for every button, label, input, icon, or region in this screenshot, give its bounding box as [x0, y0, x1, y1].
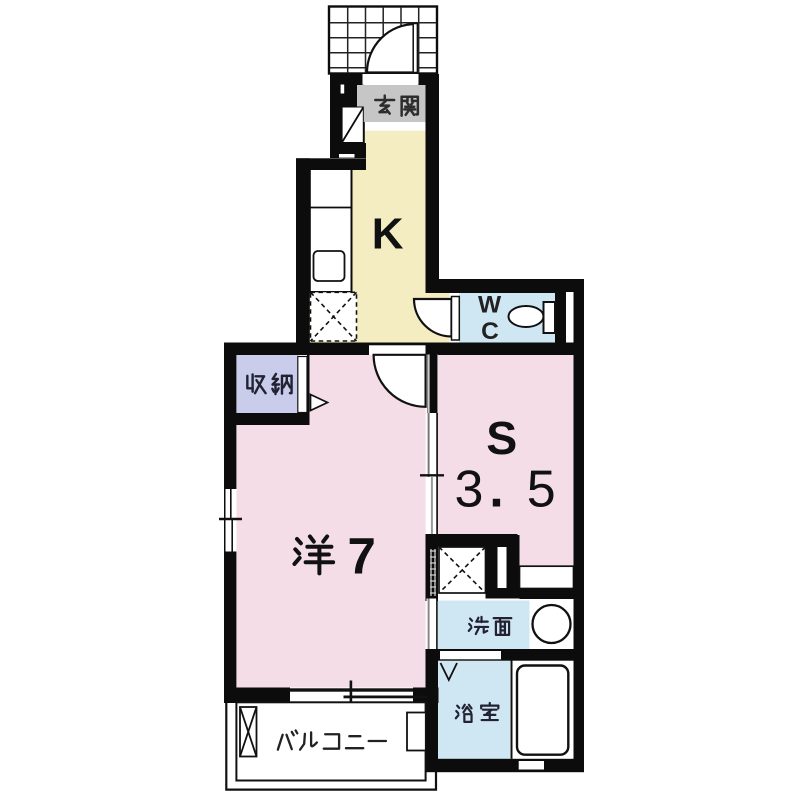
svg-text:W: W [478, 292, 502, 319]
svg-text:C: C [481, 318, 499, 345]
svg-text:5: 5 [527, 460, 556, 518]
svg-text:.: . [489, 460, 503, 518]
svg-text:K: K [372, 209, 404, 258]
svg-text:3: 3 [455, 460, 484, 518]
svg-text:S: S [486, 412, 517, 464]
svg-text:7: 7 [348, 528, 376, 585]
